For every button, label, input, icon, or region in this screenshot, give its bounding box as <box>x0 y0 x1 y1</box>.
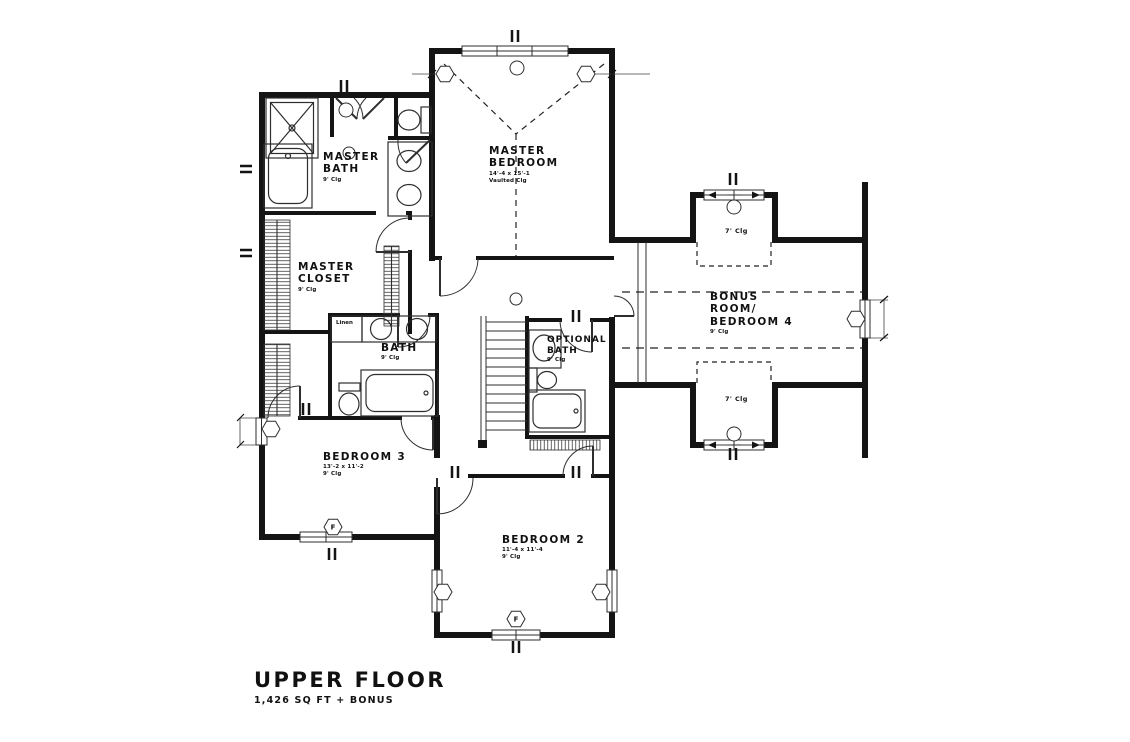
label-dormer-top-ceiling: 7' Clg <box>725 227 748 235</box>
floor-plan-sheet: F F MASTER BEDROOM 14'-4 x 15'-1 Vaulted… <box>0 0 1130 742</box>
window-marker-hex <box>592 584 610 600</box>
window-marker-hex <box>434 584 452 600</box>
schedule-marker <box>339 103 353 117</box>
label-linen: Linen <box>336 320 353 326</box>
room-name-line: CLOSET <box>298 273 351 285</box>
label-master-bath: MASTER BATH 9' Clg <box>323 151 379 184</box>
room-ceiling: 9' Clg <box>547 357 565 363</box>
room-ceiling: 9' Clg <box>298 287 316 293</box>
label-bedroom2: BEDROOM 2 11'-4 x 11'-4 9' Clg <box>502 534 585 561</box>
room-name-line: BATH <box>381 342 417 354</box>
label-dormer-bottom-ceiling: 7' Clg <box>725 395 748 403</box>
window-marker-letter: F <box>514 616 519 624</box>
room-dims: 11'-4 x 11'-4 <box>502 547 543 553</box>
room-name-line: BEDROOM 2 <box>502 534 585 546</box>
schedule-marker <box>727 200 741 214</box>
stair-newel-post <box>478 440 487 448</box>
room-ceiling: Vaulted Clg <box>489 178 527 184</box>
stair-treads <box>486 322 527 430</box>
window-marker-hex <box>847 311 865 327</box>
room-name-line: Linen <box>336 320 353 326</box>
floor-plan-drawing: F F <box>0 0 1130 742</box>
room-ceiling: 7' Clg <box>725 227 748 235</box>
schedule-marker <box>510 61 524 75</box>
bath-toilet <box>339 383 360 415</box>
room-ceiling: 9' Clg <box>381 355 399 361</box>
label-bath: BATH 9' Clg <box>381 342 417 362</box>
room-ceiling: 9' Clg <box>502 554 520 560</box>
master-vanity <box>388 142 432 216</box>
room-ceiling: 9' Clg <box>710 329 728 335</box>
schedule-marker <box>510 293 522 305</box>
ceiling-lines <box>444 64 863 383</box>
room-name-line: ROOM/ <box>710 303 757 315</box>
room-dims: 13'-2 x 11'-2 <box>323 464 364 470</box>
room-ceiling: 9' Clg <box>323 177 341 183</box>
bath-tub <box>361 370 438 416</box>
room-name-line: MASTER <box>298 261 354 273</box>
room-name-line: OPTIONAL <box>547 335 607 345</box>
room-name-line: BEDROOM 4 <box>710 316 793 328</box>
optional-bath-toilet <box>529 368 557 392</box>
label-bonus-room: BONUS ROOM/ BEDROOM 4 9' Clg <box>710 291 793 336</box>
master-toilet <box>398 107 431 133</box>
room-name-line: MASTER <box>489 145 545 157</box>
sheet-subtitle: 1,426 SQ FT + BONUS <box>254 695 446 706</box>
label-master-bedroom: MASTER BEDROOM 14'-4 x 15'-1 Vaulted Clg <box>489 145 558 185</box>
room-name-line: BONUS <box>710 291 758 303</box>
section-ticks <box>240 30 736 653</box>
room-dims: 14'-4 x 15'-1 <box>489 171 530 177</box>
label-optional-bath: OPTIONAL BATH 9' Clg <box>547 335 607 364</box>
room-ceiling: 9' Clg <box>323 471 341 477</box>
bonus-railing <box>638 242 646 383</box>
label-master-closet: MASTER CLOSET 9' Clg <box>298 261 354 294</box>
stairs <box>478 316 527 448</box>
sheet-title-block: UPPER FLOOR 1,426 SQ FT + BONUS <box>254 668 446 706</box>
window-marker-hex <box>436 66 454 82</box>
room-name-line: BATH <box>547 346 578 356</box>
room-name-line: BEDROOM <box>489 157 558 169</box>
sheet-title: UPPER FLOOR <box>254 668 446 692</box>
window-marker-hex <box>262 421 280 437</box>
room-name-line: BEDROOM 3 <box>323 451 406 463</box>
schedule-marker <box>727 427 741 441</box>
optional-bath-tub <box>529 390 585 432</box>
window-marker-letter: F <box>331 524 336 532</box>
room-ceiling: 7' Clg <box>725 395 748 403</box>
room-name-line: MASTER <box>323 151 379 163</box>
room-name-line: BATH <box>323 163 359 175</box>
window-marker-hex <box>577 66 595 82</box>
label-bedroom3: BEDROOM 3 13'-2 x 11'-2 9' Clg <box>323 451 406 478</box>
